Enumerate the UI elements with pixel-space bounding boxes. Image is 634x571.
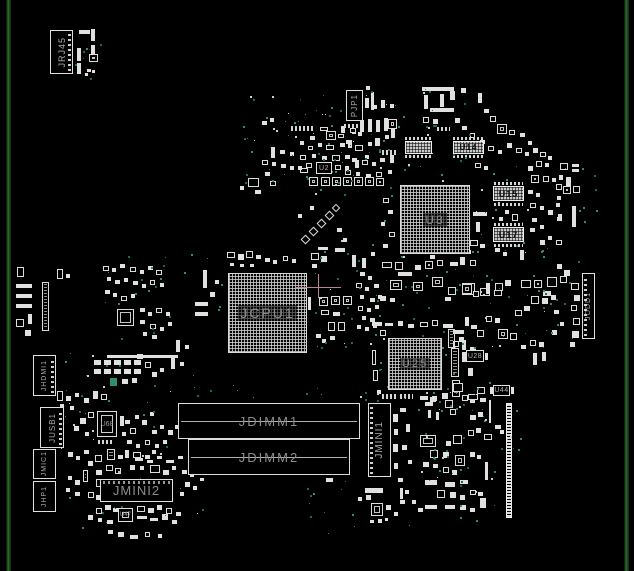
board-part (548, 156, 552, 160)
test-point-dot (426, 436, 428, 438)
via-dot (543, 256, 545, 258)
board-part (540, 206, 544, 210)
board-part (168, 322, 172, 326)
board-part (115, 280, 120, 284)
board-part (368, 142, 372, 146)
board-part (142, 420, 147, 425)
component-u8[interactable]: U8 (400, 185, 470, 254)
board-part (300, 141, 304, 145)
component-u28[interactable]: U28 (466, 350, 484, 362)
board-part (301, 235, 311, 245)
board-part (272, 162, 276, 166)
board-part (256, 255, 261, 259)
board-part (520, 133, 525, 137)
via-dot (375, 334, 377, 336)
via-dot (341, 152, 342, 153)
board-part (455, 118, 460, 123)
via-dot (506, 179, 508, 181)
board-part (172, 466, 176, 470)
part-inner (500, 127, 504, 131)
via-dot (433, 457, 435, 459)
via-dot (300, 99, 301, 100)
board-part (437, 490, 445, 498)
via-dot (153, 332, 155, 334)
board-part (376, 120, 380, 132)
component-label: U25 (400, 358, 430, 370)
component-jdimm2[interactable]: JDIMM2 (188, 439, 350, 475)
test-point-dot (250, 96, 252, 98)
board-part (118, 455, 123, 459)
via-dot (379, 149, 381, 151)
board-part (140, 308, 145, 312)
via-dot (345, 346, 347, 348)
component-label: U14 (460, 143, 478, 152)
board-part (321, 177, 330, 186)
via-dot (81, 395, 83, 397)
board-part (380, 330, 386, 336)
component-u44[interactable]: U44 (493, 385, 510, 396)
board-part (77, 63, 81, 74)
board-part (554, 310, 559, 314)
test-point-dot (483, 294, 485, 296)
via-dot (456, 408, 458, 410)
board-part (335, 248, 345, 252)
board-part (571, 305, 577, 311)
test-point-dot (377, 393, 379, 395)
board-part (312, 154, 316, 158)
board-part (470, 240, 478, 246)
via-dot (83, 51, 85, 53)
test-point-dot (491, 478, 493, 480)
board-part (385, 135, 389, 139)
board-part (75, 480, 80, 485)
via-dot (108, 272, 109, 273)
test-point-dot (160, 453, 162, 455)
board-part (408, 324, 414, 328)
via-dot (418, 409, 420, 411)
board-part (325, 211, 335, 221)
via-dot (371, 134, 372, 135)
board-part (521, 280, 531, 288)
test-point-dot (432, 153, 433, 154)
via-dot (522, 222, 523, 223)
board-part (312, 264, 317, 268)
board-part (566, 177, 571, 186)
via-dot (307, 488, 309, 490)
board-part (163, 440, 167, 444)
board-part (77, 48, 81, 61)
board-part (215, 280, 219, 284)
board-part (390, 104, 394, 108)
via-dot (219, 306, 221, 308)
via-dot (572, 338, 573, 339)
board-part (572, 331, 579, 338)
board-part (448, 287, 456, 295)
board-part (332, 204, 340, 212)
component-pjp1[interactable]: PJP1 (346, 90, 363, 121)
board-part (557, 196, 561, 200)
via-dot (422, 335, 424, 337)
via-dot (108, 400, 110, 402)
board-part (382, 150, 398, 155)
component-jusb1[interactable]: JUSB1 (40, 407, 64, 448)
via-dot (464, 103, 466, 105)
component-label: JDIMM1 (239, 414, 299, 429)
component-jdimm1[interactable]: JDIMM1 (178, 403, 360, 439)
board-part (106, 465, 113, 471)
part-inner (324, 180, 327, 183)
board-part (308, 297, 311, 310)
board-part (365, 327, 369, 331)
via-dot (493, 173, 495, 175)
boardview-canvas[interactable]: JRJ45PJP1U2U14U8U15U17JCPU1U25U28U44JODD… (0, 0, 634, 571)
via-dot (306, 393, 308, 395)
via-dot (507, 439, 508, 440)
board-part (330, 336, 335, 340)
board-part (16, 304, 32, 308)
board-part (311, 253, 319, 260)
component-u47[interactable]: U47 (118, 508, 133, 522)
via-dot (102, 512, 104, 514)
board-part (530, 228, 535, 232)
component-jodd1[interactable]: JODD1 (582, 273, 595, 339)
board-part (95, 455, 102, 462)
via-dot (501, 448, 503, 450)
board-part (306, 163, 312, 168)
board-part (476, 222, 480, 232)
board-part (142, 284, 146, 288)
board-part (400, 488, 403, 499)
via-dot (472, 251, 474, 253)
via-dot (475, 394, 476, 395)
board-part (360, 295, 364, 299)
test-point-dot (353, 141, 354, 142)
board-part (118, 532, 124, 537)
via-dot (404, 169, 406, 171)
part-inner (423, 438, 433, 444)
pin-row (68, 33, 71, 71)
board-part (130, 465, 135, 470)
via-dot (445, 354, 447, 356)
board-part (398, 272, 412, 276)
via-dot (583, 207, 585, 209)
component-label: JDIMM2 (239, 450, 299, 465)
board-part (512, 214, 518, 221)
board-part (398, 478, 403, 482)
via-dot (523, 242, 525, 244)
board-part (101, 394, 107, 400)
via-dot (434, 449, 436, 451)
via-dot (485, 212, 486, 213)
board-part (148, 312, 152, 316)
board-part (130, 267, 136, 272)
component-jmini2[interactable]: JMINI2 (100, 479, 173, 502)
via-dot (455, 269, 456, 270)
board-part (433, 119, 438, 124)
component-u68[interactable]: U68 (97, 411, 117, 437)
component-jhp1[interactable]: JHP1 (33, 481, 56, 512)
test-point-dot (544, 311, 545, 312)
component-jcpu1[interactable]: JCPU1 (228, 273, 307, 353)
board-part (563, 186, 571, 194)
board-part (340, 143, 345, 147)
board-part (112, 268, 116, 272)
via-dot (494, 505, 495, 506)
via-dot (365, 158, 367, 160)
board-part (140, 270, 144, 274)
board-part (163, 470, 169, 475)
board-part (122, 379, 128, 384)
via-dot (309, 503, 310, 504)
board-part (477, 330, 484, 337)
via-dot (433, 125, 435, 127)
board-part (506, 403, 512, 518)
board-part (443, 324, 453, 328)
board-part (366, 495, 371, 500)
board-part (310, 206, 314, 210)
component-label: JMINI1 (374, 421, 385, 459)
board-part (240, 264, 244, 267)
via-dot (147, 402, 148, 403)
test-point-dot (272, 96, 274, 98)
via-dot (331, 125, 333, 127)
component-jhdmi1[interactable]: JHDMI1 (33, 355, 56, 396)
component-jrj45[interactable]: JRJ45 (50, 30, 73, 74)
test-point-dot (92, 430, 94, 432)
board-part (507, 143, 512, 148)
via-dot (398, 126, 400, 128)
pin-row (584, 276, 587, 336)
via-dot (83, 58, 84, 59)
via-dot (285, 121, 286, 122)
board-part (468, 430, 474, 436)
board-part (354, 177, 363, 186)
board-part (495, 248, 500, 252)
component-jmini1[interactable]: JMINI1 (368, 403, 391, 477)
board-part (166, 460, 174, 463)
test-point-dot (370, 343, 372, 345)
board-part (362, 160, 368, 165)
board-part (292, 259, 296, 263)
board-part (366, 174, 371, 178)
via-dot (486, 275, 488, 277)
board-part (240, 186, 244, 190)
board-part (298, 214, 302, 218)
board-part (331, 296, 340, 305)
board-part (511, 387, 514, 394)
board-part (450, 91, 455, 100)
via-dot (184, 272, 186, 274)
board-part (150, 518, 158, 521)
board-part (366, 86, 370, 90)
test-point-dot (426, 392, 428, 394)
board-part (355, 145, 363, 151)
pin-row (51, 358, 54, 393)
via-dot (543, 347, 544, 348)
board-part (531, 175, 539, 183)
via-dot (317, 388, 318, 389)
board-part (432, 320, 438, 326)
via-dot (439, 401, 441, 403)
component-label: JMINI2 (113, 483, 160, 498)
via-dot (483, 416, 484, 417)
board-part (530, 203, 536, 208)
component-u17[interactable]: U17 (493, 227, 524, 242)
via-dot (527, 295, 528, 296)
board-part (505, 210, 509, 214)
component-u25[interactable]: U25 (388, 338, 442, 390)
board-part (17, 267, 24, 277)
board-part (291, 126, 315, 131)
board-part (265, 172, 270, 176)
via-dot (520, 438, 522, 440)
via-dot (246, 174, 248, 176)
board-part (356, 172, 360, 176)
component-jmic1[interactable]: JMIC1 (33, 449, 56, 479)
part-inner (346, 299, 349, 302)
test-point-dot (103, 386, 105, 388)
pin-row (103, 481, 170, 484)
via-dot (395, 105, 396, 106)
board-part (462, 126, 467, 130)
board-part (425, 402, 433, 406)
board-part (185, 482, 190, 487)
test-point-dot (485, 419, 487, 421)
board-part (430, 255, 435, 259)
component-u2[interactable]: U2 (316, 162, 332, 174)
via-dot (335, 171, 337, 173)
board-part (394, 429, 398, 435)
via-dot (320, 262, 321, 263)
board-part (473, 291, 479, 297)
test-point-dot (87, 375, 89, 377)
via-dot (516, 324, 518, 326)
via-dot (578, 261, 580, 263)
board-part (572, 169, 579, 172)
via-dot (461, 481, 463, 483)
via-dot (376, 295, 377, 296)
board-part (84, 450, 89, 454)
board-part (524, 306, 530, 311)
component-label: U8 (423, 213, 446, 227)
board-part (137, 516, 147, 519)
board-part (346, 140, 351, 144)
via-dot (210, 390, 212, 392)
via-dot (100, 44, 102, 46)
board-part (460, 257, 465, 265)
via-dot (428, 157, 429, 158)
test-point-dot (439, 409, 440, 410)
board-part (378, 519, 382, 523)
board-part (341, 126, 345, 133)
board-part (203, 270, 207, 288)
test-point-dot (341, 240, 343, 242)
via-dot (251, 151, 253, 153)
via-dot (474, 347, 476, 349)
board-part (335, 165, 341, 170)
board-part (68, 452, 73, 457)
board-part (393, 444, 398, 452)
board-part (533, 148, 538, 153)
via-dot (79, 411, 81, 413)
via-dot (447, 388, 449, 390)
via-dot (379, 151, 381, 153)
via-dot (321, 347, 323, 349)
via-dot (477, 388, 479, 390)
via-dot (428, 307, 430, 309)
via-dot (429, 91, 431, 93)
via-dot (547, 248, 548, 249)
board-part (459, 337, 464, 342)
board-part (107, 520, 113, 524)
via-dot (482, 409, 483, 410)
via-dot (463, 404, 465, 406)
board-part (321, 310, 329, 315)
board-part (560, 322, 564, 326)
board-part (453, 155, 484, 158)
component-u15[interactable]: U15 (493, 186, 524, 201)
test-point-dot (61, 448, 62, 449)
via-dot (403, 116, 405, 118)
component-u13[interactable] (405, 141, 432, 154)
via-dot (266, 117, 268, 119)
board-part (378, 295, 382, 299)
component-label: JCPU1 (238, 305, 296, 321)
via-dot (135, 293, 137, 295)
board-part (382, 262, 392, 268)
component-label: JHDMI1 (41, 360, 48, 391)
part-inner (374, 506, 380, 513)
via-dot (435, 125, 437, 127)
board-part (326, 131, 336, 140)
board-part (160, 425, 164, 429)
via-dot (207, 258, 208, 259)
board-part (180, 362, 184, 366)
board-part (572, 164, 579, 167)
component-u14[interactable]: U14 (453, 141, 484, 154)
board-part (573, 318, 580, 325)
test-point-dot (450, 392, 451, 393)
board-part (262, 121, 267, 125)
board-part (155, 444, 159, 448)
board-part (80, 418, 86, 424)
board-part (477, 455, 481, 459)
via-dot (337, 278, 339, 280)
board-part (445, 297, 451, 301)
board-part (380, 158, 385, 162)
via-dot (321, 394, 322, 395)
test-point-dot (499, 345, 501, 347)
board-part (326, 145, 334, 150)
test-point-dot (295, 136, 297, 138)
board-part (465, 317, 469, 326)
via-dot (513, 448, 514, 449)
board-part (468, 394, 478, 400)
board-part (265, 258, 270, 262)
board-part (450, 262, 458, 266)
board-part (145, 440, 150, 445)
board-part (318, 143, 322, 147)
via-dot (194, 387, 195, 388)
board-part (120, 264, 125, 268)
via-dot (499, 288, 500, 289)
via-dot (115, 508, 116, 509)
board-part (352, 158, 357, 162)
board-part (376, 172, 382, 177)
board-part (156, 270, 162, 275)
via-dot (347, 170, 349, 172)
via-dot (365, 399, 367, 401)
